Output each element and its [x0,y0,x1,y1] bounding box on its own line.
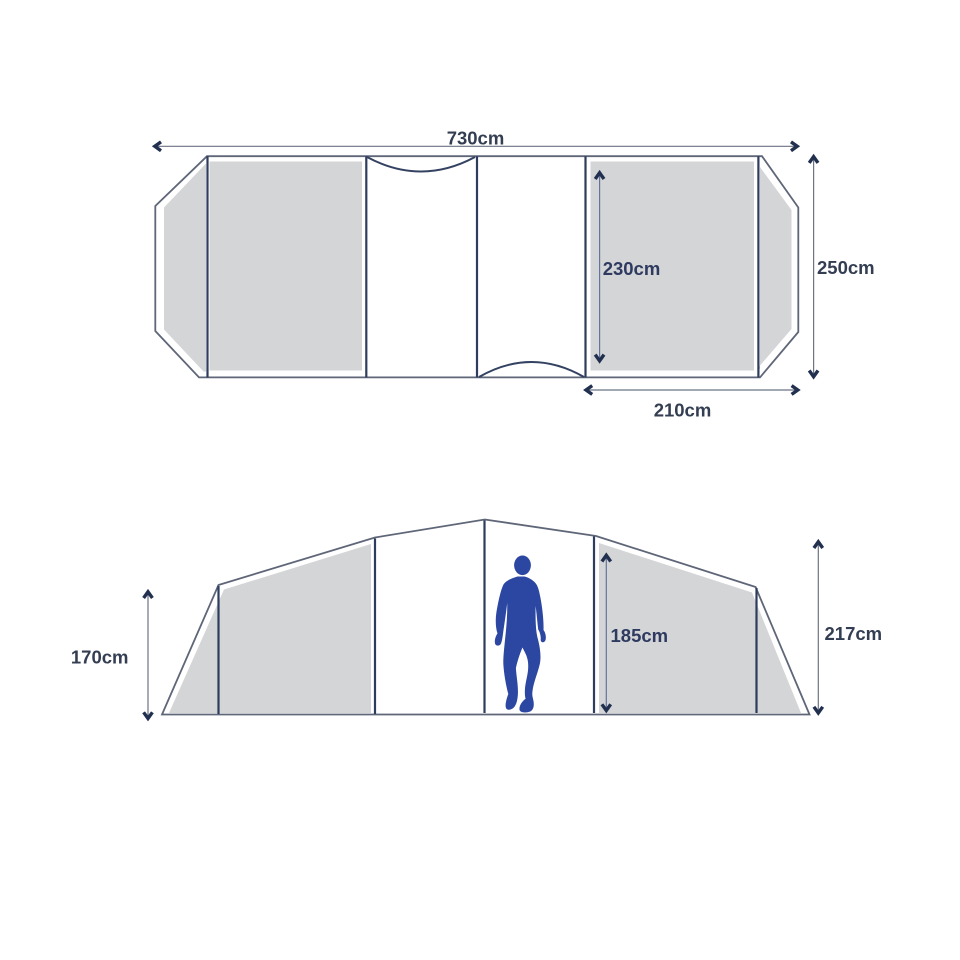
svg-text:250cm: 250cm [817,257,875,278]
svg-text:217cm: 217cm [825,623,883,644]
svg-text:230cm: 230cm [603,258,661,279]
svg-text:210cm: 210cm [654,400,712,421]
svg-text:730cm: 730cm [447,128,505,149]
svg-text:185cm: 185cm [611,625,669,646]
svg-text:170cm: 170cm [71,647,129,668]
